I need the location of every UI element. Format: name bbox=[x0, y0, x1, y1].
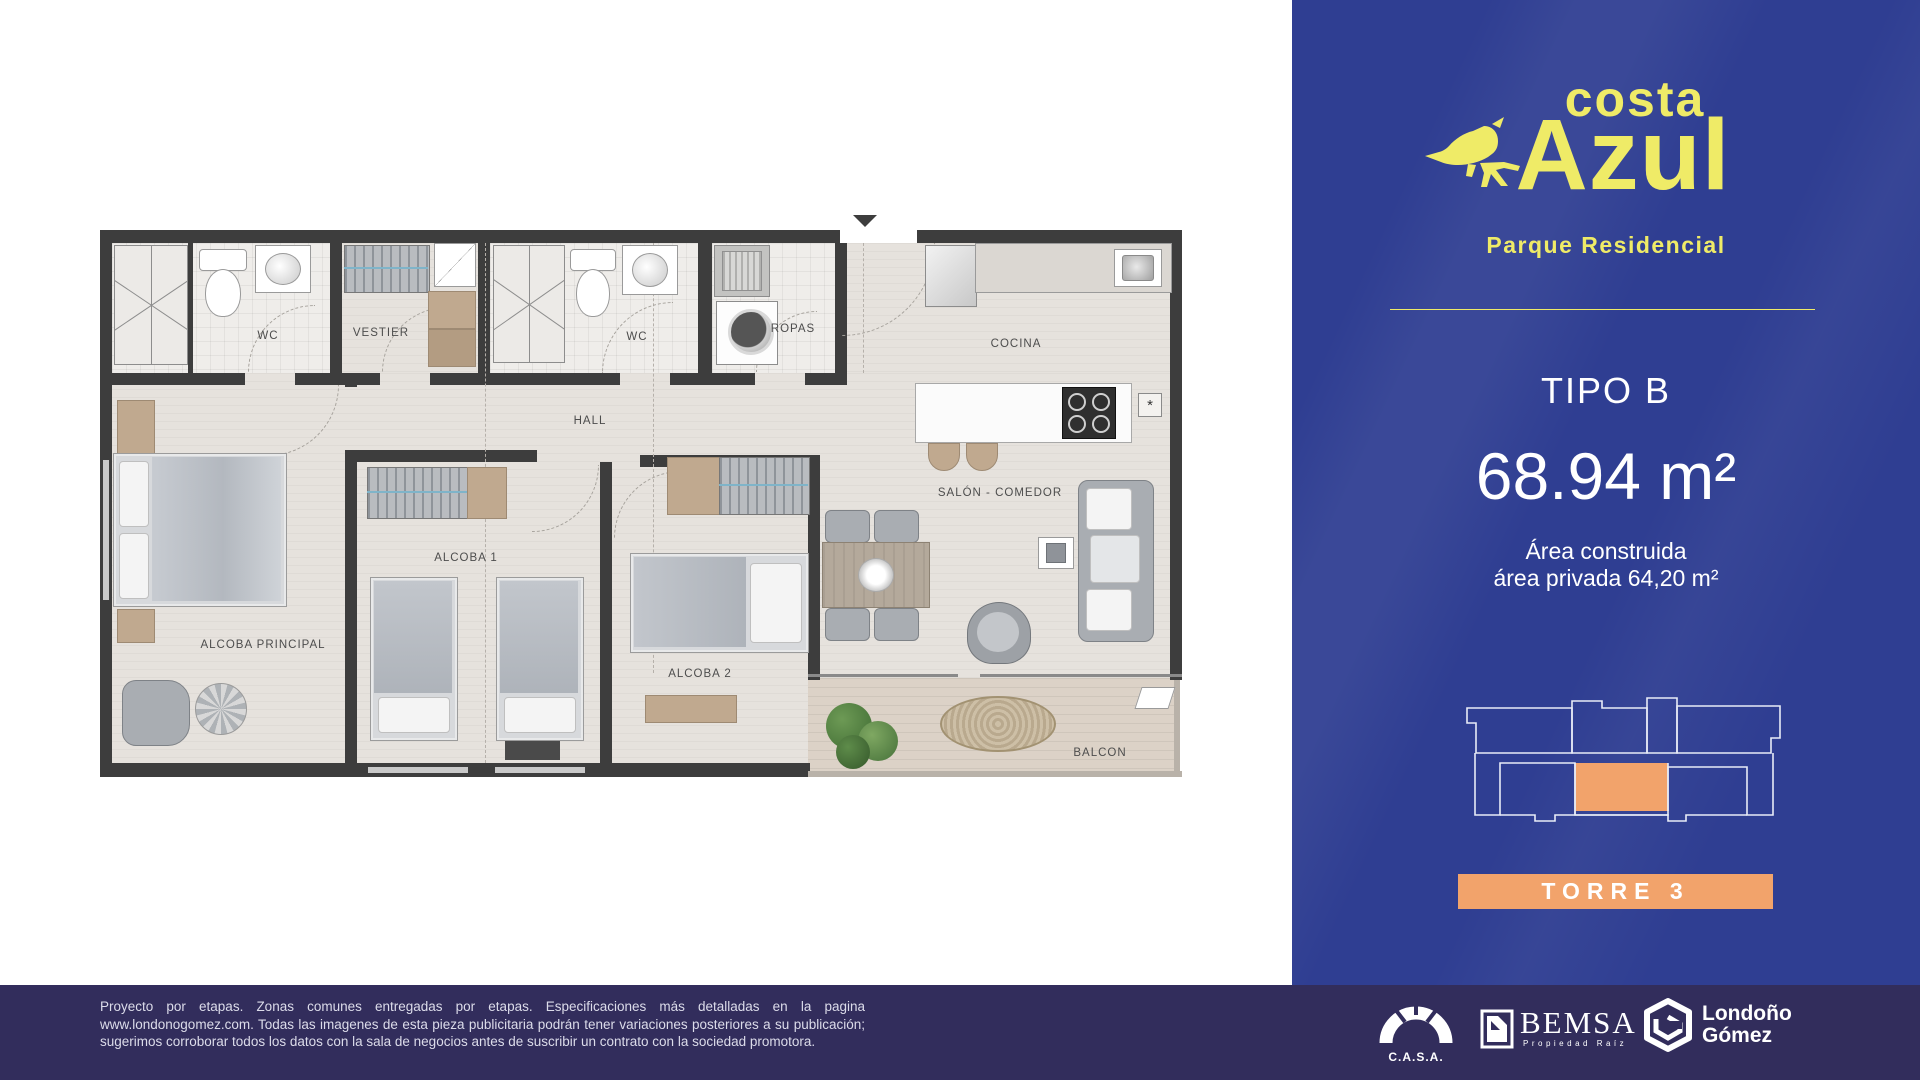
pillow bbox=[119, 533, 149, 599]
pillow bbox=[119, 461, 149, 527]
room-label-wc2: WC bbox=[626, 331, 647, 343]
fridge-icon bbox=[925, 245, 977, 307]
info-panel: costa Azul Parque Residencial TIPO B 68.… bbox=[1292, 0, 1920, 985]
room-label-hall: HALL bbox=[574, 415, 607, 427]
vestier-cabinet-icon bbox=[428, 329, 476, 367]
area-line2: área privada 64,20 m² bbox=[1292, 565, 1920, 592]
pillow bbox=[750, 563, 802, 643]
desk-icon bbox=[645, 695, 737, 723]
window-alcoba1 bbox=[368, 767, 468, 773]
bemsa-logo: BEMSA Propiedad Raíz bbox=[1480, 1007, 1630, 1059]
footer: Proyecto por etapas. Zonas comunes entre… bbox=[0, 985, 1920, 1080]
vestier-cabinet-icon bbox=[428, 291, 476, 329]
bed-duvet bbox=[374, 581, 452, 693]
toilet2-bowl-icon bbox=[576, 269, 610, 317]
londono-line1: Londoño bbox=[1702, 1003, 1792, 1025]
washer-door-icon bbox=[728, 309, 774, 355]
duct-icon bbox=[434, 243, 476, 287]
kitchen-star: * bbox=[1147, 397, 1153, 414]
brand-azul: Azul bbox=[1498, 98, 1748, 213]
window-alcoba2 bbox=[495, 767, 585, 773]
kitchen-sink-basin bbox=[1122, 255, 1154, 281]
utility-sink-board bbox=[722, 251, 762, 291]
toilet1-bowl-icon bbox=[205, 269, 241, 317]
shower1-icon bbox=[114, 245, 188, 365]
closet-rod bbox=[719, 484, 808, 486]
torre-button[interactable]: TORRE 3 bbox=[1458, 874, 1773, 909]
tipo-label: TIPO B bbox=[1292, 370, 1920, 412]
wall-master-east bbox=[345, 450, 357, 775]
dining-chair-icon bbox=[825, 608, 870, 641]
room-label-alcoba1: ALCOBA 1 bbox=[434, 552, 498, 564]
bemsa-logo-text: BEMSA bbox=[1520, 1005, 1637, 1041]
wall-top-left bbox=[100, 230, 840, 243]
bemsa-logo-subtext: Propiedad Raíz bbox=[1523, 1039, 1627, 1048]
balcony-table-icon bbox=[940, 696, 1056, 752]
kitchen-star-box: * bbox=[1138, 393, 1162, 417]
wall-strip-bottom-d bbox=[670, 373, 755, 385]
dining-chair-icon bbox=[825, 510, 870, 543]
tower-footprint-diagram bbox=[1458, 693, 1788, 833]
plant-icon bbox=[836, 735, 870, 769]
master-duvet bbox=[152, 457, 281, 601]
room-label-wc1: WC bbox=[257, 330, 278, 342]
highlighted-unit bbox=[1575, 763, 1668, 811]
alcoba1-closet-side bbox=[467, 467, 507, 519]
wall-top-right bbox=[917, 230, 1182, 243]
sofa-cushion bbox=[1086, 589, 1132, 631]
wall-alcoba1-alcoba2 bbox=[600, 462, 612, 775]
toilet1-icon bbox=[199, 249, 247, 271]
room-label-alcoba-principal: ALCOBA PRINCIPAL bbox=[200, 639, 325, 651]
rug-icon bbox=[195, 683, 247, 735]
room-label-balcon: BALCON bbox=[1073, 747, 1126, 759]
brand-subtitle: Parque Residencial bbox=[1292, 232, 1920, 259]
room-label-vestier: VESTIER bbox=[353, 327, 409, 339]
wall-wc2-ropas bbox=[698, 243, 712, 373]
sofa-cushion bbox=[1086, 488, 1132, 530]
wall-master-stub bbox=[345, 377, 357, 387]
balcony-rail-right bbox=[1174, 680, 1180, 775]
alcoba1-closet-icon bbox=[367, 467, 469, 519]
bed-duvet bbox=[634, 557, 746, 647]
floor-plan: * WC VESTIER WC ROPAS COCINA bbox=[100, 225, 1182, 781]
casa-arch-icon bbox=[1378, 993, 1454, 1045]
side-table-item bbox=[1046, 543, 1066, 563]
room-label-ropas: ROPAS bbox=[771, 323, 815, 335]
balcony-rail-bottom bbox=[808, 771, 1182, 777]
wall-right bbox=[1170, 230, 1182, 680]
burner bbox=[1068, 393, 1086, 411]
divider-line bbox=[1390, 309, 1815, 310]
balcony-slider-b bbox=[980, 674, 1182, 677]
area-value: 68.94 m² bbox=[1292, 438, 1920, 514]
room-label-cocina: COCINA bbox=[991, 338, 1042, 350]
balcony-slider-a bbox=[808, 674, 958, 677]
londono-text: Londoño Gómez bbox=[1702, 1003, 1792, 1047]
wall-strip-bottom-b bbox=[295, 373, 380, 385]
wall-strip-bottom-a bbox=[100, 373, 245, 385]
area-detail: Área construida área privada 64,20 m² bbox=[1292, 538, 1920, 592]
entry-marker-icon bbox=[853, 215, 877, 227]
nightstand-icon bbox=[117, 609, 155, 643]
bed-duvet bbox=[500, 581, 578, 693]
window-master bbox=[103, 460, 109, 600]
pillow bbox=[378, 697, 450, 733]
pillow bbox=[504, 697, 576, 733]
wall-strip-bottom-e bbox=[805, 373, 847, 385]
burner bbox=[1092, 393, 1110, 411]
closet-rod bbox=[367, 491, 467, 493]
wall-vestier-wc2 bbox=[478, 243, 490, 373]
shower2-icon bbox=[493, 245, 565, 363]
dining-chair-icon bbox=[874, 608, 919, 641]
alcoba2-closet-side bbox=[667, 457, 721, 515]
bemsa-icon bbox=[1480, 1009, 1514, 1049]
londono-gomez-logo: Londoño Gómez bbox=[1642, 997, 1822, 1057]
casa-logo-text: C.A.S.A. bbox=[1378, 1050, 1454, 1064]
toilet2-icon bbox=[570, 249, 616, 271]
room-label-alcoba2: ALCOBA 2 bbox=[668, 668, 732, 680]
burner bbox=[1068, 415, 1086, 433]
alcoba2-closet-icon bbox=[719, 457, 810, 515]
dresser-icon bbox=[117, 400, 155, 459]
disclaimer-text: Proyecto por etapas. Zonas comunes entre… bbox=[100, 998, 865, 1051]
closet-rod bbox=[344, 267, 428, 269]
vestier-closet-icon bbox=[344, 245, 430, 293]
armchair-seat bbox=[977, 612, 1019, 652]
balcony-bench-icon bbox=[1134, 687, 1175, 709]
wall-alcoba1-top bbox=[357, 450, 537, 462]
wall-wc1-vestier bbox=[330, 243, 342, 373]
casa-logo: C.A.S.A. bbox=[1378, 993, 1454, 1065]
wall-shower-divider1 bbox=[188, 243, 193, 373]
area-line1: Área construida bbox=[1292, 538, 1920, 565]
burner bbox=[1092, 415, 1110, 433]
centerpiece-icon bbox=[858, 558, 894, 592]
sink2-basin bbox=[632, 253, 668, 287]
sink1-basin bbox=[265, 253, 301, 285]
master-armchair-icon bbox=[122, 680, 190, 746]
wall-strip-bottom-c bbox=[430, 373, 620, 385]
dining-chair-icon bbox=[874, 510, 919, 543]
room-label-salon: SALÓN - COMEDOR bbox=[938, 487, 1062, 499]
sofa-cushion bbox=[1090, 535, 1140, 583]
londono-line2: Gómez bbox=[1702, 1025, 1792, 1047]
londono-gomez-icon bbox=[1642, 997, 1694, 1053]
